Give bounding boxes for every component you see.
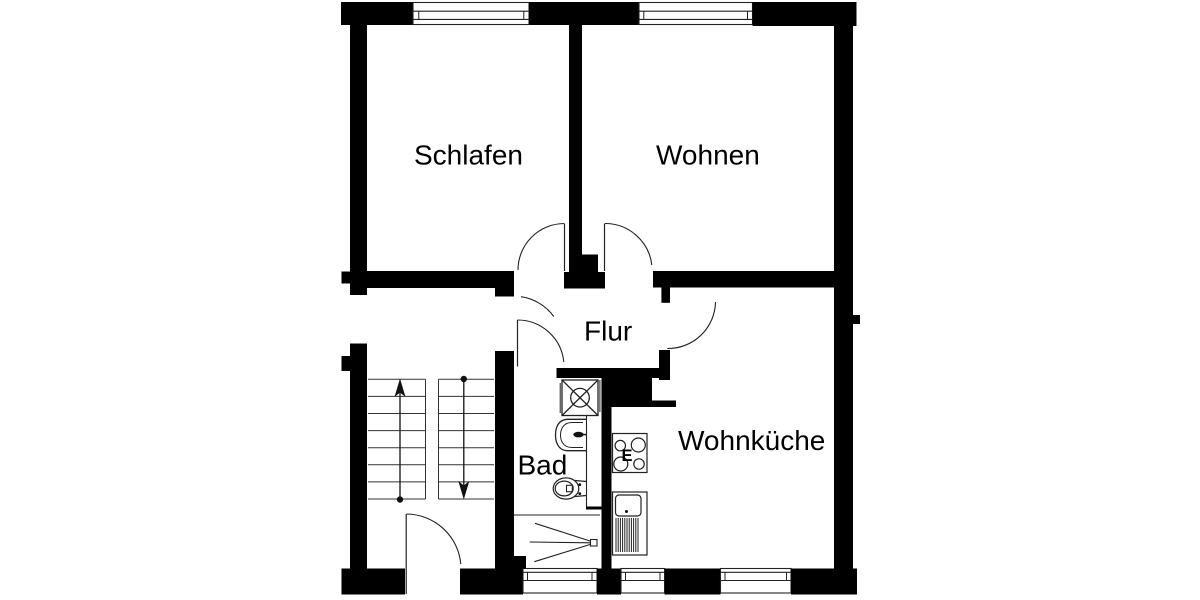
svg-text:Flur: Flur — [584, 316, 632, 347]
svg-text:Bad: Bad — [518, 450, 568, 481]
svg-text:E: E — [622, 447, 633, 465]
svg-text:Wohnen: Wohnen — [656, 140, 760, 171]
svg-text:Wohnküche: Wohnküche — [678, 425, 825, 456]
svg-text:Schlafen: Schlafen — [414, 140, 523, 171]
